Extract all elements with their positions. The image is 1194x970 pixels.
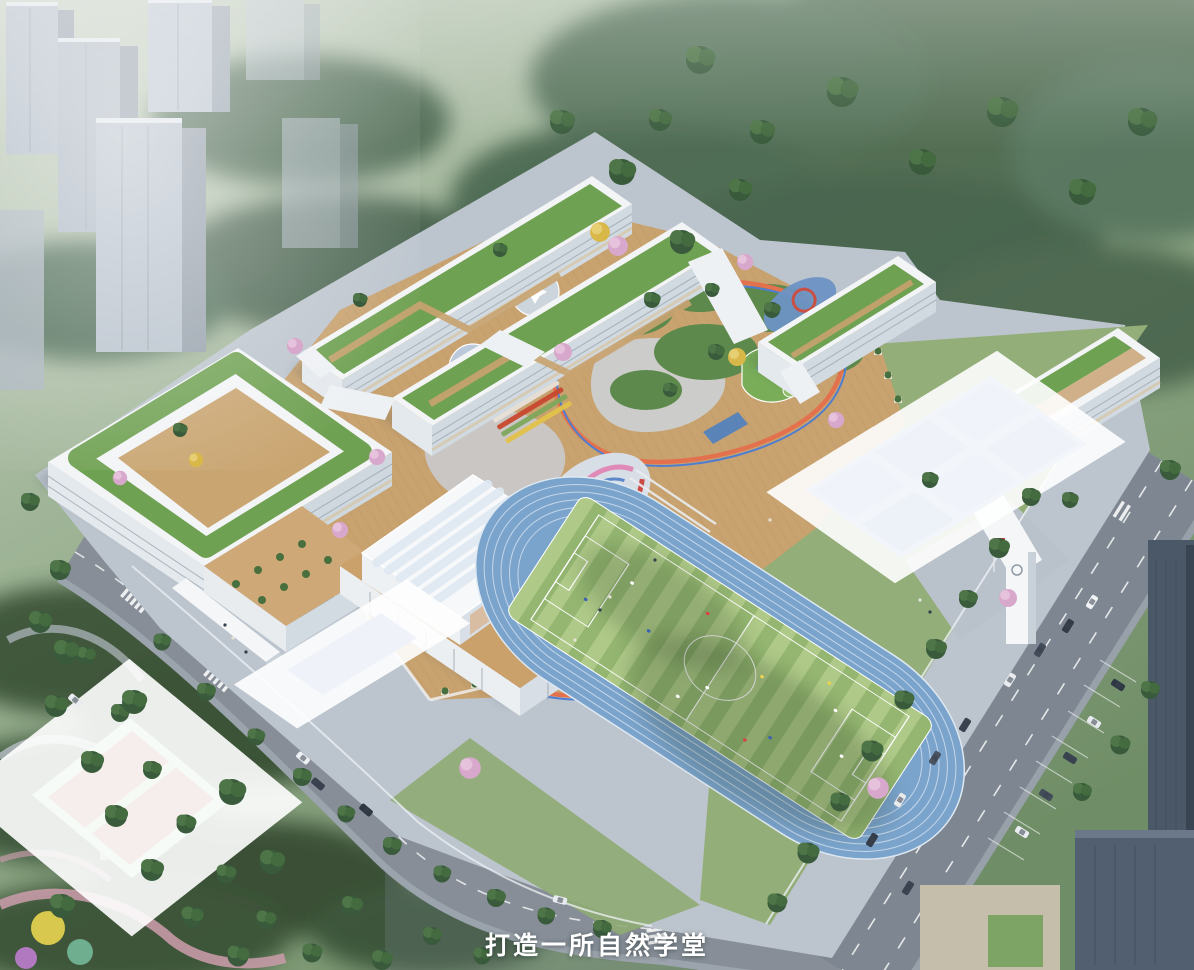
caption: 打造一所自然学堂: [0, 926, 1194, 962]
public-courts: [32, 718, 230, 878]
sky-haze: [0, 0, 1194, 150]
campus-rendering: [0, 0, 1194, 970]
rendering-stage: 打造一所自然学堂: [0, 0, 1194, 970]
